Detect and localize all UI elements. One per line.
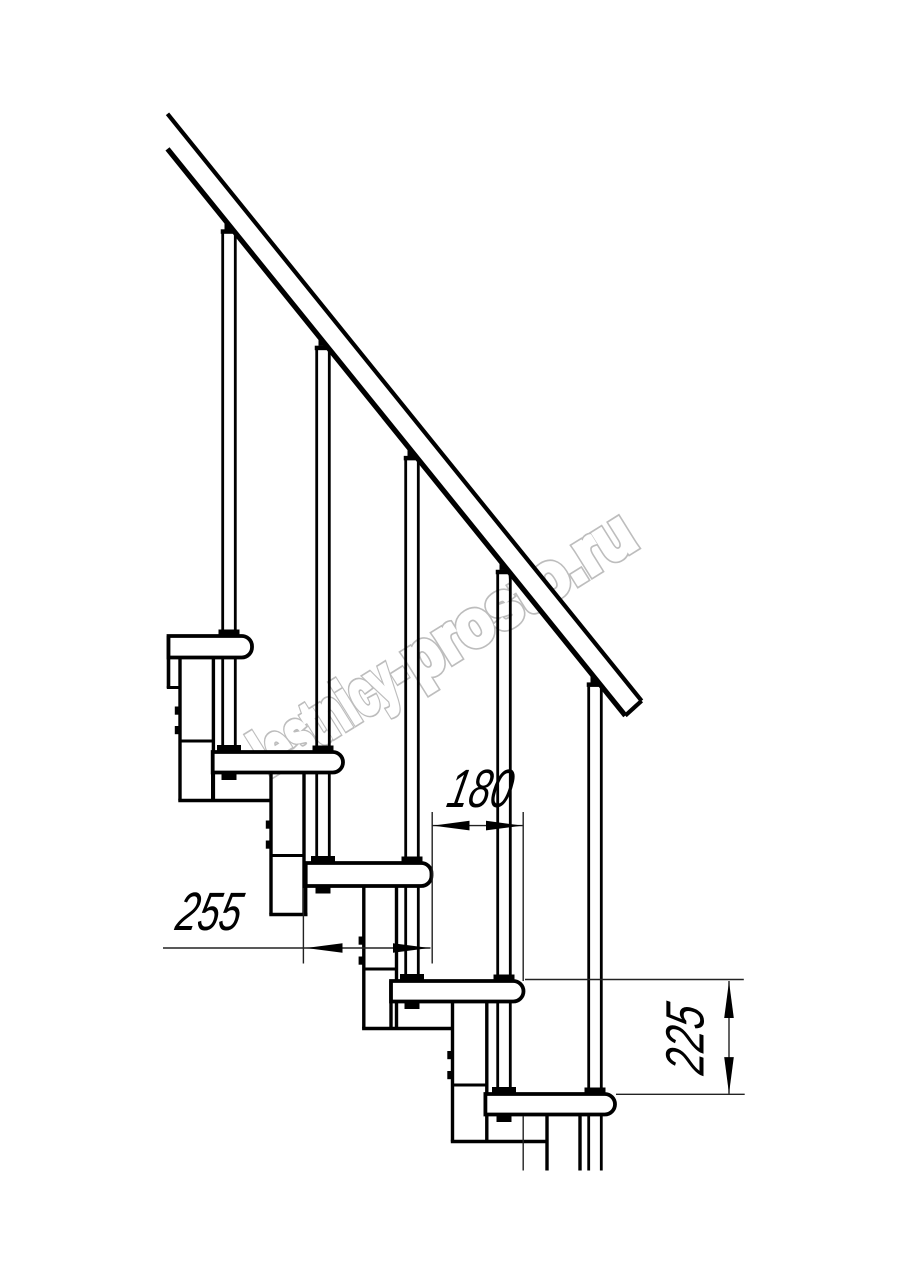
svg-text:255: 255 [171,882,249,942]
svg-text:225: 225 [656,997,716,1079]
svg-text:180: 180 [442,759,519,819]
